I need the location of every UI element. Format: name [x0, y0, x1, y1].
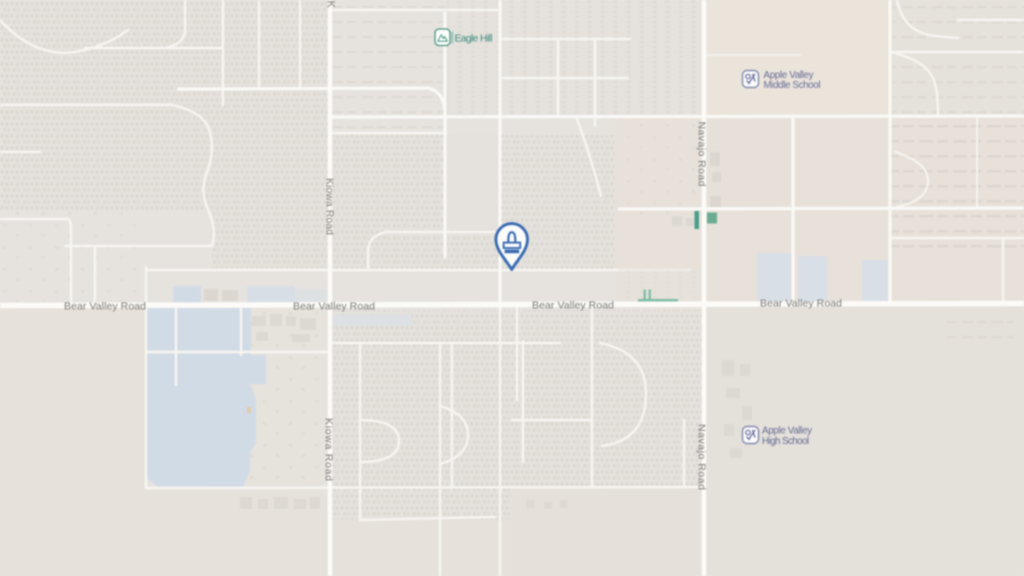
svg-text:High School: High School: [762, 436, 809, 447]
svg-text:Bear Valley Road: Bear Valley Road: [532, 300, 614, 312]
svg-text:Kiowa Road: Kiowa Road: [323, 418, 335, 481]
svg-text:Eagle Hill: Eagle Hill: [455, 34, 493, 45]
svg-text:Bear Valley Road: Bear Valley Road: [760, 298, 842, 310]
svg-text:Navajo Road: Navajo Road: [696, 424, 708, 490]
svg-text:K: K: [325, 1, 337, 9]
svg-text:Kiowa Road: Kiowa Road: [324, 178, 336, 235]
svg-text:Bear Valley Road: Bear Valley Road: [64, 301, 146, 313]
svg-text:Apple Valley: Apple Valley: [762, 426, 812, 437]
svg-text:Middle School: Middle School: [764, 80, 821, 91]
svg-text:Bear Valley Road: Bear Valley Road: [293, 301, 375, 313]
svg-text:Navajo Road: Navajo Road: [696, 122, 708, 187]
